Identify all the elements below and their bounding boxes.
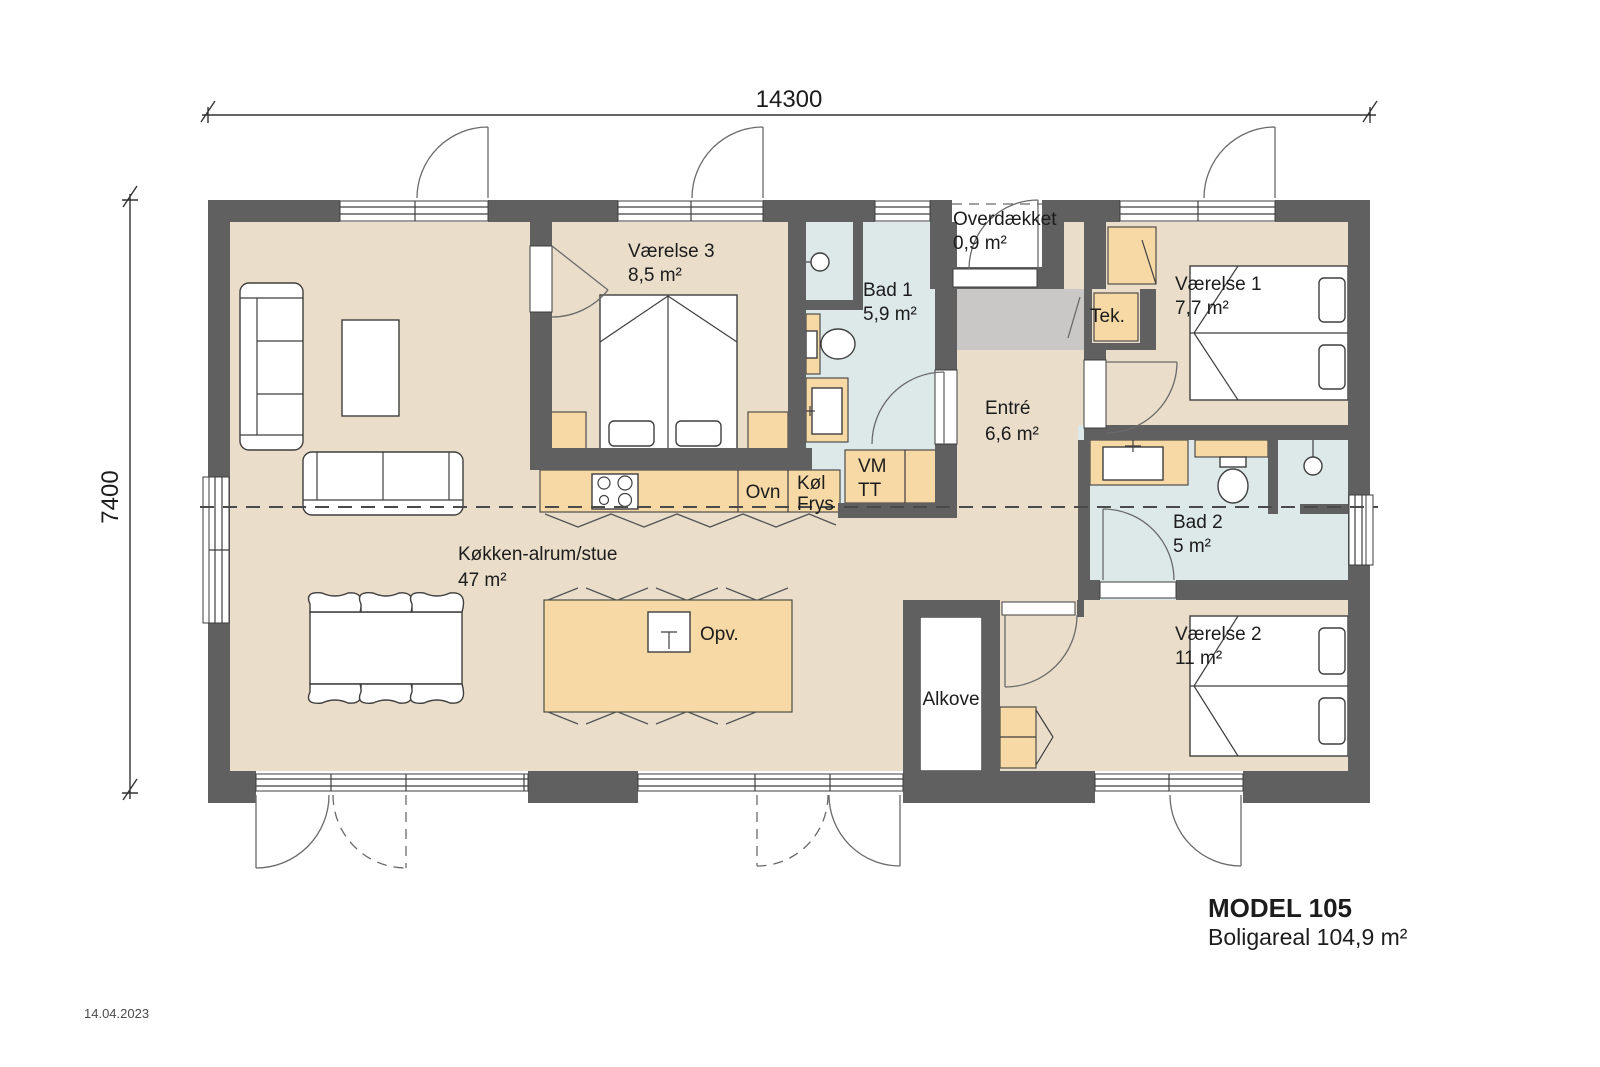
label-overdaekket-area: 0,9 m² [953,233,1007,254]
label-ovn: Ovn [746,482,781,503]
french-door-1-passive [333,795,406,868]
dimension-top: 14300 [201,86,1377,123]
window-top-vaerelse1 [1120,201,1275,221]
toilet [1218,469,1248,503]
label-vaerelse2-name: Værelse 2 [1175,624,1262,645]
kitchen-island [544,600,792,712]
glazing-bottom-1 [256,774,528,791]
window-top-vaerelse3 [618,201,763,221]
label-vaerelse1-area: 7,7 m² [1175,298,1229,319]
label-opv: Opv. [700,624,739,645]
chair [360,684,413,703]
label-vaerelse3-area: 8,5 m² [628,265,682,286]
label-vaerelse2-area: 11 m² [1175,648,1222,669]
label-koekken-name: Køkken-alrum/stue [458,544,617,565]
label-frys: Frys [797,494,834,515]
door-frame-vaerelse1 [1084,360,1106,428]
door-window-top-3 [1204,127,1275,198]
pillow [676,421,721,446]
chair [309,684,362,703]
label-bad1-name: Bad 1 [863,280,913,301]
pillow [1319,278,1345,322]
toilet [821,329,855,359]
pillow [609,421,654,446]
label-bad2-name: Bad 2 [1173,512,1223,533]
dimension-left: 7400 [97,186,138,800]
window-top-living [340,201,488,221]
glazing-bottom-2 [638,774,903,791]
chair [411,593,464,612]
sofa-large [240,283,303,450]
label-overdaekket-name: Overdækket [953,209,1057,230]
dining-table [310,612,462,684]
window-top-bad1 [875,201,930,221]
entrance-mat [957,289,1084,350]
label-alkove-name: Alkove [922,689,979,710]
label-entre-area: 6,6 m² [985,424,1039,445]
chair [360,593,413,612]
door-vaerelse2-terrace [1170,795,1241,866]
french-door-2-active [829,795,900,866]
dimension-height-label: 7400 [97,470,124,523]
date-stamp: 14.04.2023 [84,1006,149,1021]
label-koel: Køl [797,473,826,494]
bed-vaerelse3 [600,295,737,450]
label-bad2-area: 5 m² [1173,536,1211,557]
model-title: MODEL 105 [1208,893,1352,923]
door-frame-bad1 [935,370,957,444]
door-frame-front [953,269,1037,287]
label-vaerelse1-name: Værelse 1 [1175,274,1262,295]
chair [309,593,362,612]
coffee-table [342,320,399,416]
toilet-tank [806,331,817,358]
area-subtitle: Boligareal 104,9 m² [1208,924,1408,950]
label-koekken-area: 47 m² [458,570,507,591]
chair [411,684,464,703]
label-bad1-area: 5,9 m² [863,304,917,325]
vaerelse1-wardrobe [1108,227,1156,284]
window-left-living [203,477,229,623]
door-window-top-2 [692,127,763,198]
door-frame-vaerelse3 [530,246,552,312]
pillow [1319,698,1345,744]
french-door-2-passive [757,795,828,866]
sink [812,388,842,434]
label-tek-name: Tek. [1090,306,1125,327]
door-frame-bad2 [1100,582,1176,598]
french-door-1-active [256,795,329,868]
sofa-small [303,452,463,515]
label-tt: TT [858,480,882,501]
shower-head [811,253,829,271]
label-vm: VM [858,456,887,477]
pillow [1319,345,1345,389]
toilet-tank [1220,457,1246,467]
window-right-bad2 [1349,495,1373,565]
pillow [1319,628,1345,674]
floorplan-page: 14300 7400 Køkken-alrum/stue 47 m² Værel… [0,0,1600,1067]
door-window-top-1 [417,127,488,198]
shower-head [1304,457,1322,475]
dimension-width-label: 14300 [756,86,823,113]
label-vaerelse3-name: Værelse 3 [628,241,715,262]
label-entre-name: Entré [985,398,1030,419]
glazing-bottom-3 [1095,774,1243,791]
title-block: MODEL 105 Boligareal 104,9 m² [1208,893,1408,950]
door-frame-vaerelse2 [1002,602,1075,615]
floorplan-drawing: 14300 7400 Køkken-alrum/stue 47 m² Værel… [0,0,1600,1067]
